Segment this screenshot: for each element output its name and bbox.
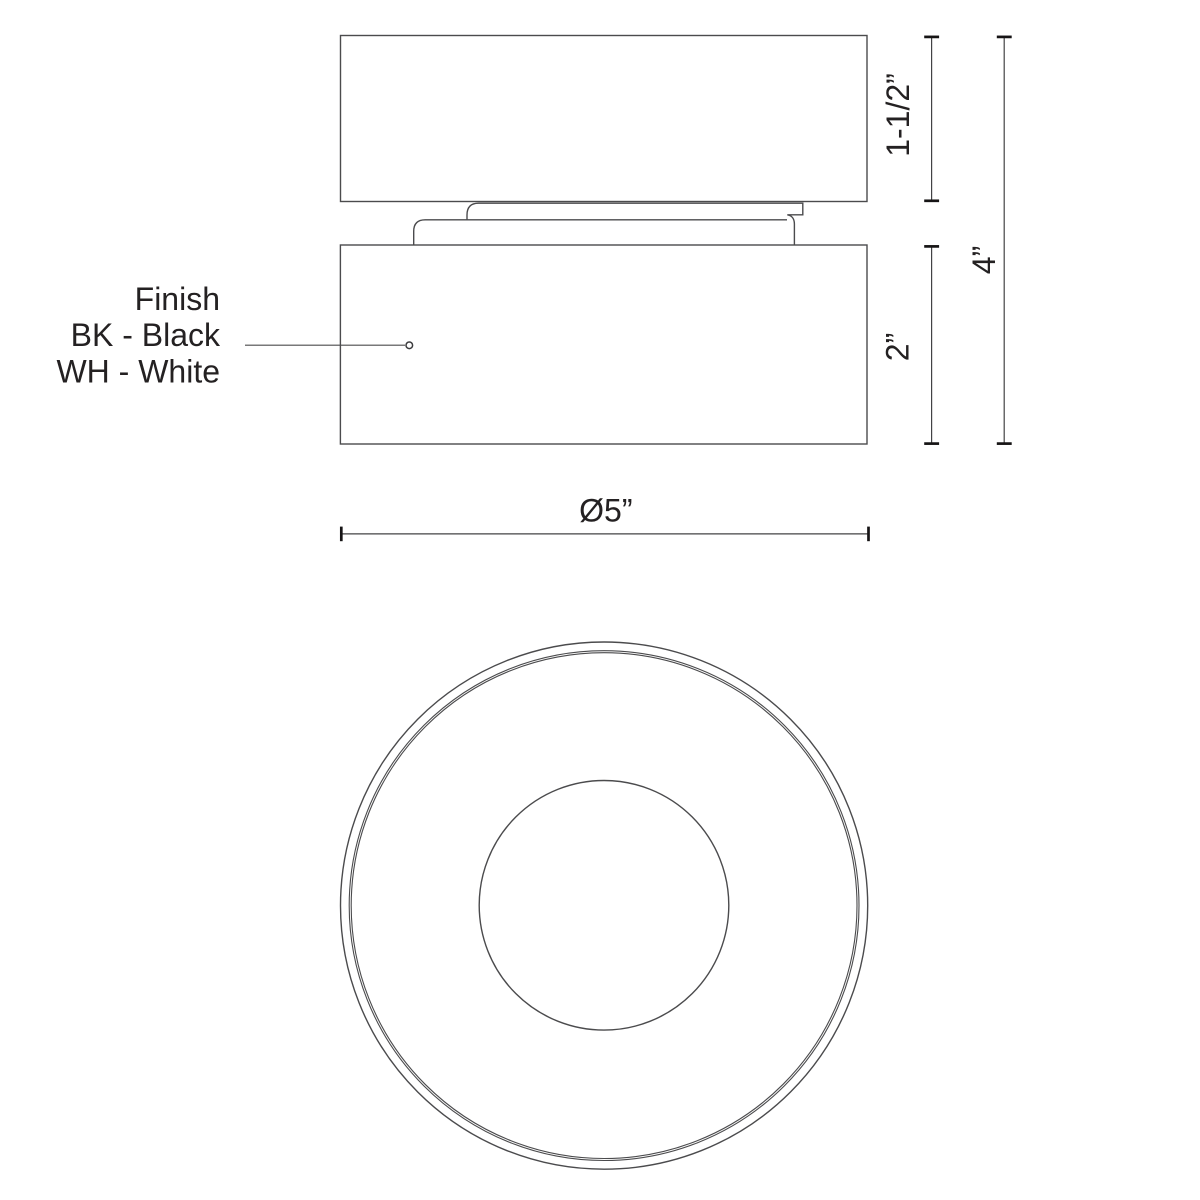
svg-text:WH - White: WH - White: [56, 354, 220, 390]
svg-text:BK - Black: BK - Black: [71, 317, 221, 353]
svg-text:Finish: Finish: [135, 281, 220, 317]
svg-text:4”: 4”: [966, 246, 1002, 274]
svg-text:Ø5”: Ø5”: [579, 492, 632, 528]
svg-text:2”: 2”: [880, 333, 916, 361]
svg-text:1-1/2”: 1-1/2”: [880, 73, 916, 157]
